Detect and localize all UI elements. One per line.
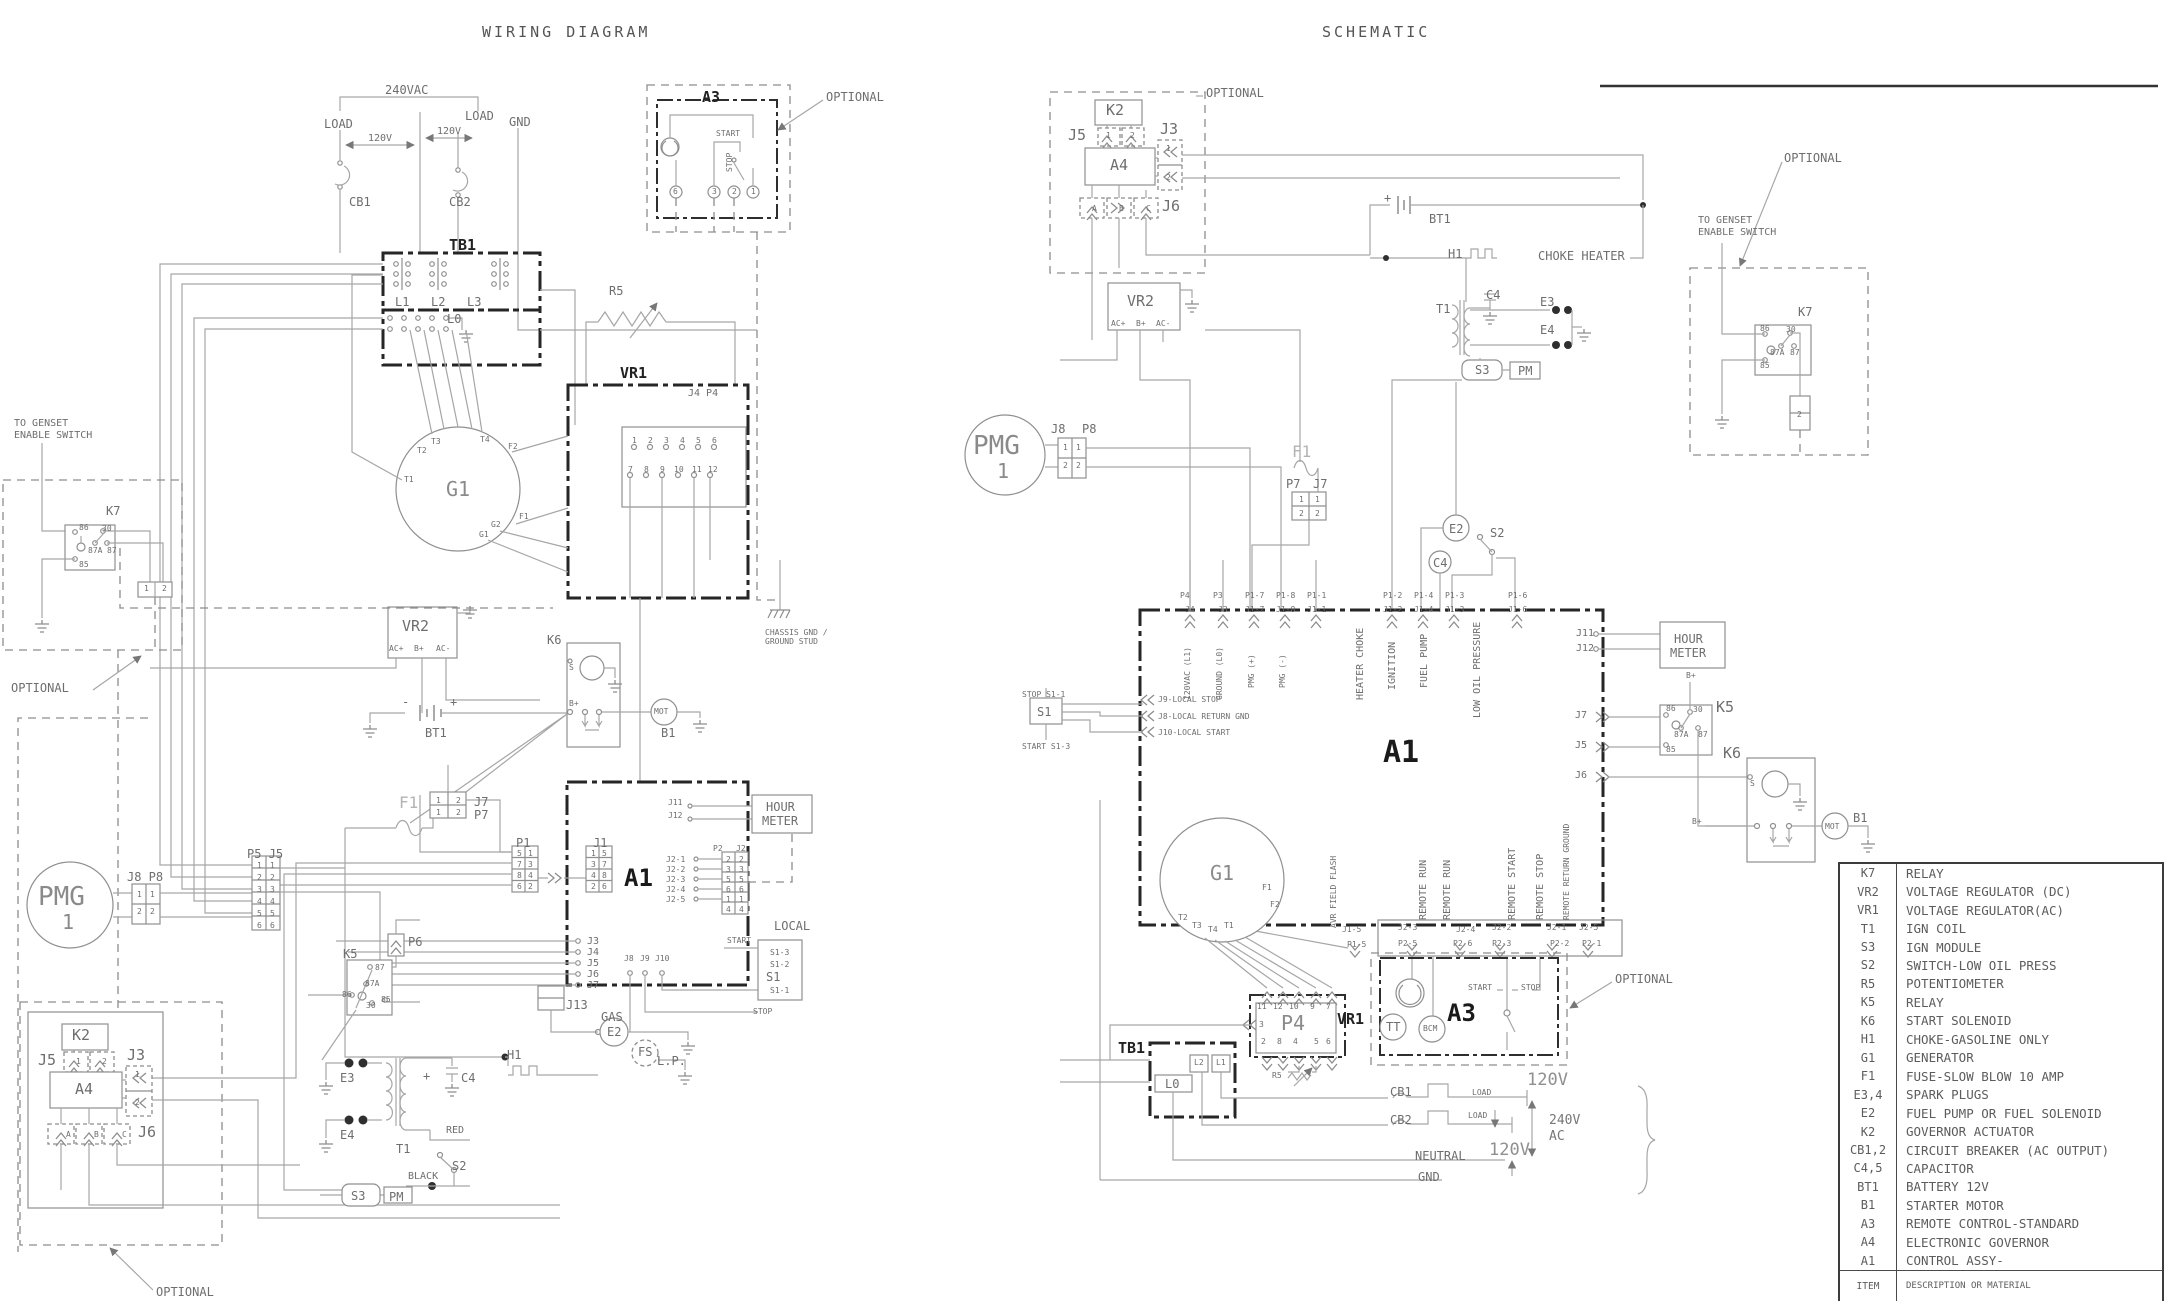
diagram-label: STOP [726,153,734,172]
diagram-label: 1 [76,1058,81,1066]
diagram-label: S2 [452,1160,466,1172]
diagram-label: 1 [1315,496,1320,504]
legend-item-id: CB1,2 [1840,1143,1896,1157]
e2-s2-c4-schematic [1392,380,1515,612]
diagram-label: OPTIONAL [1784,152,1842,164]
diagram-label: CHOKE HEATER [1538,250,1625,262]
diagram-label: TB1 [449,238,476,253]
diagram-label: A [66,1131,71,1139]
diagram-label: B1 [661,727,675,739]
diagram-label: K2 [1106,103,1124,118]
legend-row: VR1 VOLTAGE REGULATOR(AC) [1840,901,2162,919]
diagram-label: LOW OIL PRESSURE [1473,622,1483,718]
legend-item-desc: VOLTAGE REGULATOR(AC) [1896,901,2162,919]
diagram-label: 1 [632,437,637,445]
diagram-label: 87 [375,964,385,972]
diagram-label: A4 [75,1082,93,1097]
legend-item-desc: RELAY [1896,864,2162,882]
diagram-label: HOUR [766,801,795,813]
legend-item-desc: CIRCUIT BREAKER (AC OUTPUT) [1896,1141,2162,1159]
legend-item-desc: FUSE-SLOW BLOW 10 AMP [1896,1067,2162,1085]
legend-item-desc: BATTERY 12V [1896,1178,2162,1196]
legend-row: F1 FUSE-SLOW BLOW 10 AMP [1840,1067,2162,1085]
r5-potentiometer-wiring [586,303,735,385]
diagram-label: NEUTRAL [1415,1150,1466,1162]
legend-item-desc: RELAY [1896,993,2162,1011]
diagram-label: K6 [1723,746,1741,761]
diagram-label: F1 [519,513,529,521]
legend-item-id: G1 [1840,1051,1896,1065]
diagram-label: 7 [628,466,633,474]
diagram-label: 2 [1299,510,1304,518]
legend-row: K2 GOVERNOR ACTUATOR [1840,1122,2162,1140]
diagram-label: P1-4 [1414,592,1433,600]
diagram-label: 3 [664,437,669,445]
diagram-label: J1-5 [1342,926,1361,934]
diagram-label: P1-7 [1245,592,1264,600]
legend-item-id: S2 [1840,958,1896,972]
diagram-label: C [1146,205,1151,213]
legend-item-desc: FUEL PUMP OR FUEL SOLENOID [1896,1104,2162,1122]
diagram-label: J2-5 [1579,924,1598,932]
diagram-label: F2 [1270,901,1280,909]
diagram-label: 3 [257,886,262,894]
diagram-label: J10 [655,955,669,963]
diagram-label: 2 [1076,462,1081,470]
diagram-label: AVR FIELD FLASH [1330,856,1338,928]
diagram-label: 3 [528,861,533,869]
diagram-label: 8 [644,466,649,474]
diagram-label: AC- [436,645,450,653]
legend-item-desc: VOLTAGE REGULATOR (DC) [1896,882,2162,900]
diagram-label: 1 [1076,444,1081,452]
diagram-label: L2 [431,296,445,308]
diagram-label: 2 [456,809,461,817]
diagram-label: 1 [144,585,149,593]
diagram-label: P2-2 [1550,940,1569,948]
legend-item-desc: STARTER MOTOR [1896,1196,2162,1214]
diagram-label: STOP S1-1 [1022,691,1065,699]
legend-item-id: T1 [1840,922,1896,936]
diagram-label: 1 [257,862,262,870]
diagram-label: F2 [508,443,518,451]
diagram-label: 3 [1259,1021,1264,1029]
diagram-label: 2 [257,874,262,882]
diagram-label: J1-2 [1383,606,1402,614]
legend-row: S3 IGN MODULE [1840,938,2162,956]
diagram-label: FS [638,1046,652,1058]
diagram-label: P2-6 [1453,940,1472,948]
diagram-label: 6 [602,883,607,891]
diagram-label: 120V [437,127,461,137]
governor-optional-box-wiring [20,1002,560,1290]
diagram-label: L0 [447,313,461,325]
diagram-label: 8 [517,872,522,880]
diagram-label: 1 [270,862,275,870]
diagram-label: B+ [414,645,424,653]
diagram-label: 6 [270,922,275,930]
legend-row: A4 ELECTRONIC GOVERNOR [1840,1233,2162,1251]
legend-item-id: H1 [1840,1032,1896,1046]
diagram-label: 86 [1760,325,1770,333]
diagram-label: C4 [1486,289,1500,301]
legend-row: A1 CONTROL ASSY- [1840,1252,2162,1270]
diagram-label: 87A [365,980,379,988]
diagram-label: J4 [587,948,599,958]
diagram-label: 2 [135,1099,140,1107]
diagram-label: 1 [997,461,1009,481]
diagram-label: P1-5 [1347,941,1366,949]
diagram-label: J5 [1575,741,1587,751]
vr2-battery-k6-wiring [150,606,707,823]
legend-item-id: C4,5 [1840,1161,1896,1175]
diagram-label: P4 [1180,592,1190,600]
diagram-label: E3 [1540,296,1554,308]
diagram-label: B [94,1131,99,1139]
ignition-coil-schematic [1452,258,1591,380]
diagram-label: 6 [673,188,678,196]
diagram-label: 3 [712,188,717,196]
diagram-label: J4 [1185,606,1195,614]
diagram-label: REMOTE STOP [1536,854,1546,920]
diagram-label: S3 [1475,364,1489,376]
diagram-label: REMOTE RUN [1419,860,1429,920]
diagram-label: GND [1418,1171,1440,1183]
diagram-label: R5 [609,285,623,297]
diagram-label: J2-2 [1492,924,1511,932]
legend-row: S2 SWITCH-LOW OIL PRESS [1840,956,2162,974]
diagram-label: T3 [1192,922,1202,930]
legend-row: K6 START SOLENOID [1840,1012,2162,1030]
diagram-label: 120V [1489,1142,1530,1159]
diagram-label: 240V [1549,1114,1580,1127]
legend-table: K7 RELAY VR2 VOLTAGE REGULATOR (DC) VR1 … [1838,862,2164,1301]
diagram-label: R5 [1272,1072,1282,1080]
diagram-label: 6 [257,922,262,930]
legend-row: K7 RELAY [1840,864,2162,882]
legend-item-id: S3 [1840,940,1896,954]
diagram-label: 1 [751,188,756,196]
diagram-label: E4 [340,1129,354,1141]
diagram-label: J9 [640,955,650,963]
diagram-label: J2 [736,845,746,853]
diagram-label: ENABLE SWITCH [14,431,92,441]
diagram-label: 2 [456,797,461,805]
diagram-label: S1-2 [770,961,789,969]
diagram-label: LOAD [465,110,494,122]
diagram-label: 3 [591,861,596,869]
diagram-label: BT1 [425,727,447,739]
diagram-label: 3 [739,866,744,874]
diagram-label: START [727,937,751,945]
diagram-label: S1 [766,971,780,983]
diagram-label: VR2 [402,619,429,634]
g1-generator-schematic [1160,818,1332,988]
diagram-label: J6 [587,970,599,980]
diagram-label: S1-3 [770,949,789,957]
diagram-label: J1-4 [1414,606,1433,614]
diagram-label: T1 [1436,303,1450,315]
diagram-label: 6 [739,886,744,894]
diagram-label: 5 [270,910,275,918]
diagram-label: J1-8 [1276,606,1295,614]
local-s1-wiring [724,940,802,1000]
diagram-label: P2-5 [1398,940,1417,948]
diagram-label: L2 [1194,1059,1204,1067]
diagram-label: J2-4 [666,886,685,894]
diagram-label: P2-3 [1492,940,1511,948]
diagram-label: VR1 [1337,1012,1364,1027]
legend-footer: ITEM DESCRIPTION OR MATERIAL [1840,1270,2162,1301]
diagram-label: OPTIONAL [826,91,884,103]
diagram-label: VR1 [620,366,647,381]
diagram-label: K7 [106,505,120,517]
diagram-label: P1-3 [1445,592,1464,600]
diagram-label: 4 [726,906,731,914]
diagram-label: 87A [88,547,102,555]
diagram-label: 5 [1314,1038,1319,1046]
diagram-label: H1 [507,1049,521,1061]
diagram-label: C [122,1131,127,1139]
diagram-label: T4 [1208,926,1218,934]
diagram-label: 30 [1693,706,1703,714]
diagram-label: 5 [739,876,744,884]
diagram-label: F1 [399,795,418,811]
diagram-label: G1 [1210,863,1234,883]
diagram-label: GROUND STUD [765,638,818,646]
diagram-label: CB2 [1390,1114,1412,1126]
legend-item-desc: IGN COIL [1896,919,2162,937]
j13-e2-fs-h1-wiring [502,986,696,1084]
legend-item-desc: CONTROL ASSY- [1896,1252,2162,1270]
diagram-label: P3 [1213,592,1223,600]
diagram-label: 87 [107,547,117,555]
diagram-label: 4 [739,906,744,914]
diagram-label: 85 [1760,362,1770,370]
diagram-label: 7 [602,861,607,869]
diagram-label: P1 [516,837,530,849]
diagram-label: J6 [138,1125,156,1140]
legend-item-id: E2 [1840,1106,1896,1120]
diagram-label: K6 [547,634,561,646]
diagram-label: J3 [1218,606,1228,614]
diagram-label: F1 [1262,884,1272,892]
diagram-label: P5 J5 [247,848,283,860]
diagram-label: P2 [713,845,723,853]
diagram-label: P8 [1082,423,1096,435]
legend-item-id: A3 [1840,1217,1896,1231]
diagram-label: B+ [1686,672,1696,680]
diagram-label: 4 [1293,1038,1298,1046]
diagram-label: S3 [351,1190,365,1202]
diagram-label: 10 [674,466,684,474]
wiring-diagram-title: WIRING DIAGRAM [482,25,650,40]
diagram-label: B1 [1853,812,1867,824]
diagram-label: J3 [587,937,599,947]
diagram-label: S [1750,780,1755,788]
diagram-label: 5 [602,850,607,858]
diagram-label: 2 [1261,1038,1266,1046]
diagram-label: J5 [38,1053,56,1068]
diagram-label: LOAD [1472,1089,1491,1097]
a3-remote-box-schematic [1371,953,1612,1065]
diagram-label: 85 [381,996,391,1004]
diagram-label: 2 [102,1058,107,1066]
diagram-label: 2 [1130,132,1135,140]
diagram-label: 3 [726,866,731,874]
diagram-label: + [1384,192,1391,204]
legend-item-desc: REMOTE CONTROL-STANDARD [1896,1215,2162,1233]
diagram-label: 9 [1310,1003,1315,1011]
diagram-label: 120V [1527,1072,1568,1089]
diagram-label: 5 [726,876,731,884]
k7-relay-schematic [1690,162,1868,455]
diagram-label: REMOTE START [1508,848,1518,920]
legend-item-desc: ELECTRONIC GOVERNOR [1896,1233,2162,1251]
diagram-label: OPTIONAL [156,1286,214,1298]
diagram-label: J11 [1576,629,1594,639]
diagram-label: 30 [1786,326,1796,334]
diagram-label: 11 [1257,1003,1267,1011]
legend-row: B1 STARTER MOTOR [1840,1196,2162,1214]
diagram-label: L1 [395,296,409,308]
diagram-label: 1 [1166,145,1171,153]
diagram-label: 2 [648,437,653,445]
legend-row: A3 REMOTE CONTROL-STANDARD [1840,1215,2162,1233]
diagram-label: F1 [1292,444,1311,460]
diagram-label: C4 [461,1072,475,1084]
diagram-label: STOP [753,1008,772,1016]
diagram-label: METER [1670,647,1706,659]
legend-row: K5 RELAY [1840,993,2162,1011]
legend-item-id: K5 [1840,995,1896,1009]
legend-item-id: BT1 [1840,1180,1896,1194]
legend-row: E3,4 SPARK PLUGS [1840,1085,2162,1103]
diagram-label: AC+ [1111,320,1125,328]
diagram-label: BLACK [408,1172,438,1182]
diagram-label: TO GENSET [14,419,68,429]
diagram-label: E2 [607,1026,621,1038]
diagram-label: MOT [654,708,668,716]
legend-item-id: K6 [1840,1014,1896,1028]
diagram-label: 120VAC (L1) [1184,647,1192,700]
legend-item-desc: CAPACITOR [1896,1159,2162,1177]
diagram-label: + [423,1070,430,1082]
diagram-label: METER [762,815,798,827]
legend-item-id: B1 [1840,1198,1896,1212]
diagram-label: B [1119,205,1124,213]
legend-item-desc: GENERATOR [1896,1049,2162,1067]
diagram-label: 5 [696,437,701,445]
diagram-label: P7 [1286,478,1300,490]
diagram-label: CHASSIS GND / [765,629,828,637]
diagram-label: L3 [467,296,481,308]
diagram-label: 4 [528,872,533,880]
diagram-label: J1 [593,837,607,849]
legend-item-desc: IGN MODULE [1896,938,2162,956]
diagram-label: HOUR [1674,633,1703,645]
diagram-label: T1 [404,476,414,484]
diagram-label: J7 [1313,478,1327,490]
diagram-label: 2 [732,188,737,196]
diagram-label: VR2 [1127,294,1154,309]
legend-row: VR2 VOLTAGE REGULATOR (DC) [1840,882,2162,900]
diagram-label: GROUND (L0) [1216,647,1224,700]
diagram-label: BCM [1423,1025,1437,1033]
diagram-label: G2 [491,521,501,529]
diagram-label: 1 [150,891,155,899]
legend-row: T1 IGN COIL [1840,919,2162,937]
diagram-label: J12 [668,812,682,820]
legend-item-id: E3,4 [1840,1088,1896,1102]
diagram-label: 4 [270,898,275,906]
legend-item-id: VR2 [1840,885,1896,899]
diagram-canvas: WIRING DIAGRAM SCHEMATIC 240VACLOADLOADG… [0,0,2164,1301]
diagram-label: 11 [692,466,702,474]
diagram-label: 86 [342,991,352,999]
diagram-label: 87 [1790,349,1800,357]
diagram-label: S2 [1490,527,1504,539]
diagram-label: 2 [1166,174,1171,182]
diagram-label: 4 [680,437,685,445]
diagram-label: S [569,664,574,672]
diagram-label: J12 [1576,644,1594,654]
diagram-label: MOT [1825,823,1839,831]
legend-row: C4,5 CAPACITOR [1840,1159,2162,1177]
diagram-label: 9 [660,466,665,474]
diagram-label: 2 [1063,462,1068,470]
diagram-label: J9-LOCAL STOP [1158,696,1221,704]
diagram-label: J3 [1160,122,1178,137]
diagram-label: 30 [102,525,112,533]
legend-row: G1 GENERATOR [1840,1049,2162,1067]
diagram-label: J2-3 [666,876,685,884]
diagram-label: J2-5 [666,896,685,904]
diagram-label: PMG [973,433,1020,459]
diagram-label: P4 [1281,1013,1305,1033]
diagram-label: ENABLE SWITCH [1698,228,1776,238]
diagram-label: 85 [1666,746,1676,754]
tb1-schematic [1060,1043,1235,1117]
diagram-label: REMOTE RETURN GROUND [1563,824,1571,920]
diagram-label: 1 [528,850,533,858]
diagram-label: G1 [446,479,470,499]
legend-item-id: R5 [1840,977,1896,991]
diagram-label: J7 [587,981,599,991]
diagram-label: H1 [1448,248,1462,260]
diagram-label: A [1092,205,1097,213]
diagram-label: AC- [1156,320,1170,328]
diagram-label: A1 [1383,738,1419,768]
diagram-label: CB1 [1390,1086,1412,1098]
diagram-label: START [1468,984,1492,992]
legend-rows: K7 RELAY VR2 VOLTAGE REGULATOR (DC) VR1 … [1840,864,2162,1270]
diagram-label: 120V [368,134,392,144]
diagram-label: TB1 [1118,1041,1145,1056]
diagram-label: GAS [601,1011,623,1023]
legend-row: E2 FUEL PUMP OR FUEL SOLENOID [1840,1104,2162,1122]
diagram-label: 12 [708,466,718,474]
diagram-label: T2 [417,447,427,455]
diagram-label: J1-7 [1245,606,1264,614]
diagram-label: B+ [569,700,579,708]
diagram-label: L.P. [657,1055,686,1067]
diagram-label: - [402,696,409,708]
diagram-label: 87A [1674,731,1688,739]
diagram-label: CB2 [449,196,471,208]
diagram-label: J2-1 [666,856,685,864]
diagram-label: 2 [150,908,155,916]
